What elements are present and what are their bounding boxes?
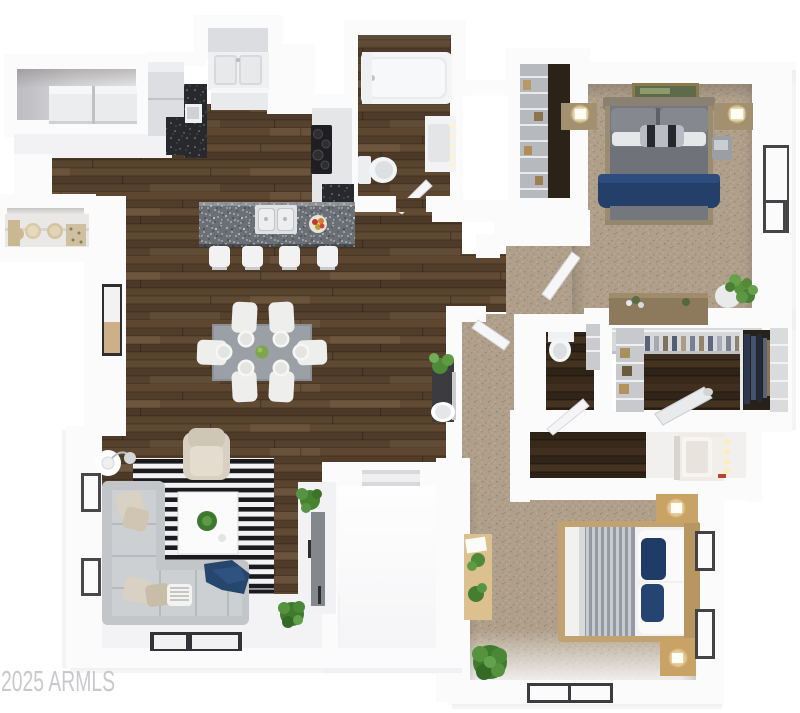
svg-text:2025 ARMLS: 2025 ARMLS (1, 666, 115, 698)
